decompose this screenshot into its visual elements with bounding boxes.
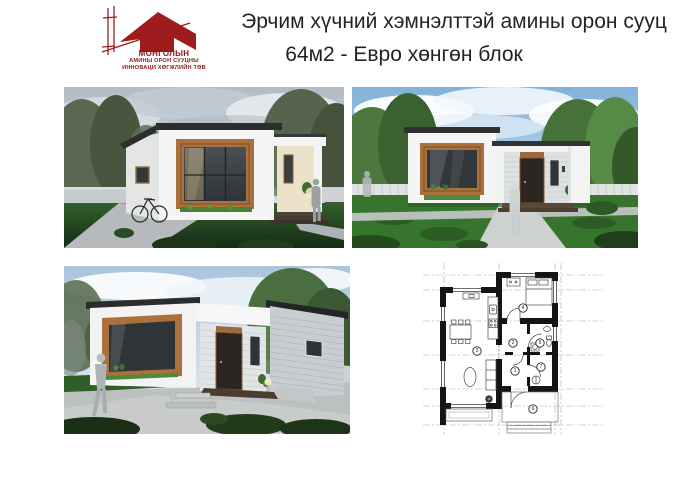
- render-front-view: [352, 87, 638, 248]
- page-subtitle: 64м2 - Евро хөнгөн блок: [228, 41, 680, 69]
- render-entrance-view-image: [64, 266, 350, 434]
- render-angled-view: [64, 87, 344, 248]
- render-entrance-view: [64, 266, 350, 434]
- floor-plan-drawing: 1 2 3 4 5 6 7: [423, 263, 636, 435]
- room-number-6: 6: [529, 405, 537, 413]
- svg-text:3: 3: [476, 348, 479, 354]
- svg-text:7: 7: [540, 364, 543, 370]
- svg-text:2: 2: [512, 340, 515, 346]
- room-number-5: 5: [536, 339, 544, 347]
- room-number-4: 4: [519, 304, 527, 312]
- render-angled-view-image: [64, 87, 344, 248]
- render-front-view-image: [352, 87, 638, 248]
- logo-text: МОНГОЛЫН АМИНЫ ОРОН СУУЦНЫ ИННОВАЦИ ХӨГЖ…: [112, 49, 216, 72]
- svg-text:4: 4: [522, 305, 525, 311]
- title-block: Эрчим хүчний хэмнэлттэй амины орон сууц …: [228, 8, 680, 69]
- logo: МОНГОЛЫН АМИНЫ ОРОН СУУЦНЫ ИННОВАЦИ ХӨГЖ…: [100, 6, 215, 78]
- floor-plan: 1 2 3 4 5 6 7: [423, 263, 636, 435]
- front-door: [216, 332, 242, 390]
- svg-text:6: 6: [532, 406, 535, 412]
- house: [120, 123, 328, 224]
- logo-line3: ИННОВАЦИ ХӨГЖЛИЙН ТӨВ: [112, 65, 216, 72]
- room-number-2: 2: [509, 339, 517, 347]
- front-door: [520, 158, 544, 203]
- room-number-1: 1: [511, 367, 519, 375]
- logo-line1: МОНГОЛЫН: [112, 49, 216, 58]
- svg-text:5: 5: [539, 340, 542, 346]
- page-title: Эрчим хүчний хэмнэлттэй амины орон сууц: [228, 8, 680, 36]
- svg-text:1: 1: [514, 368, 517, 374]
- room-number-7: 7: [537, 363, 545, 371]
- flyer-page: МОНГОЛЫН АМИНЫ ОРОН СУУЦНЫ ИННОВАЦИ ХӨГЖ…: [0, 0, 700, 494]
- room-number-3: 3: [473, 347, 481, 355]
